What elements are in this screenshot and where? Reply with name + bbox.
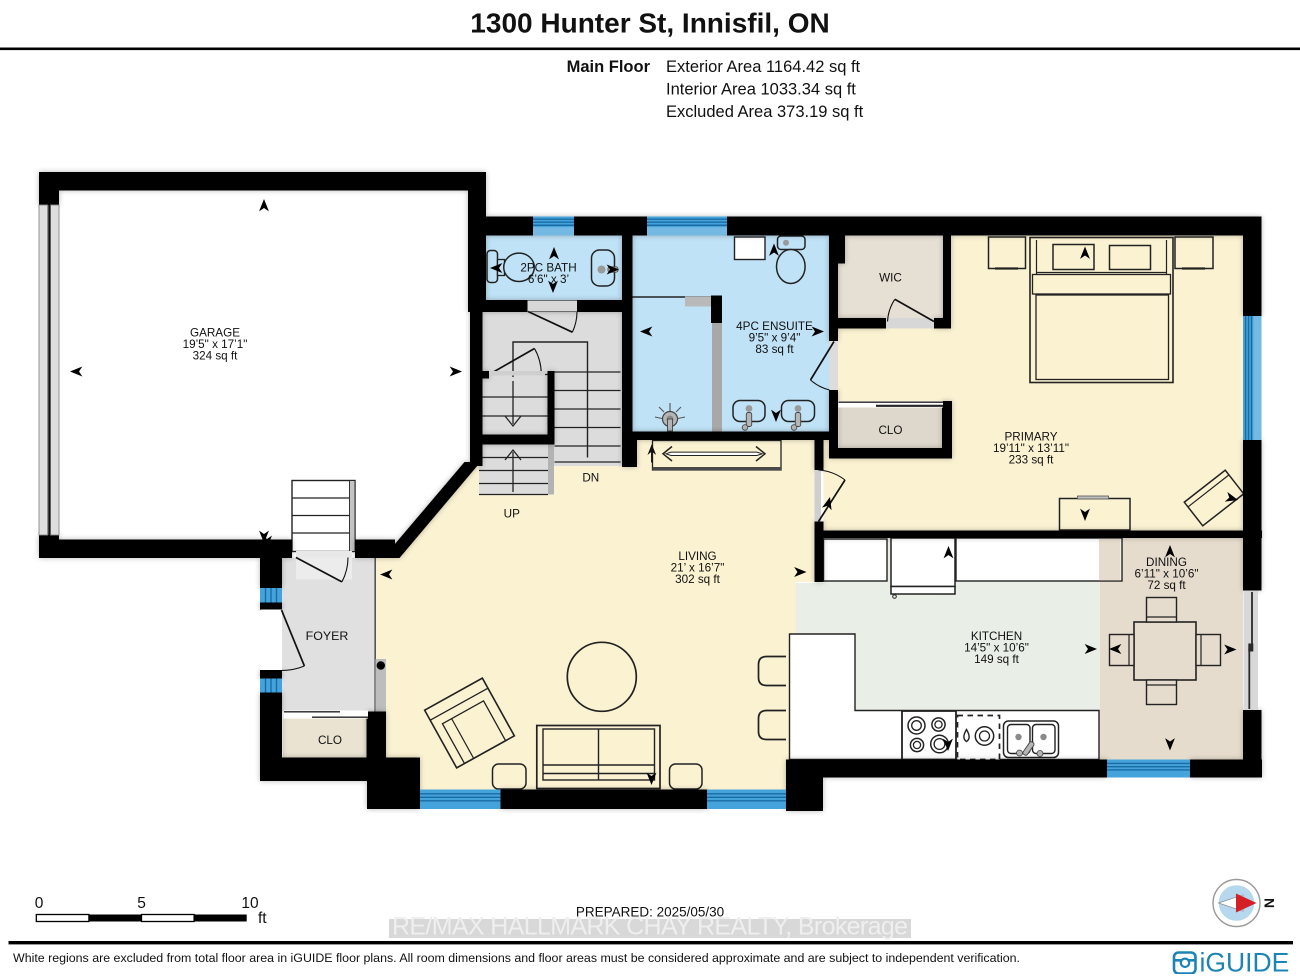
svg-text:UP: UP [504,508,520,521]
svg-text:DN: DN [582,472,599,485]
svg-text:302 sq ft: 302 sq ft [675,573,721,586]
svg-text:10: 10 [241,895,259,912]
svg-text:72 sq ft: 72 sq ft [1147,579,1186,592]
svg-text:Main Floor: Main Floor [567,58,651,76]
svg-text:N: N [1261,898,1277,908]
svg-text:RE/MAX HALLMARK CHAY REALTY, B: RE/MAX HALLMARK CHAY REALTY, Brokerage [392,913,908,941]
svg-text:233 sq ft: 233 sq ft [1009,454,1055,467]
svg-text:324 sq ft: 324 sq ft [193,350,239,363]
svg-text:149 sq ft: 149 sq ft [974,653,1020,666]
svg-text:CLO: CLO [318,734,342,747]
svg-text:CLO: CLO [878,424,902,437]
svg-text:1300 Hunter St, Innisfil, ON: 1300 Hunter St, Innisfil, ON [470,8,829,39]
svg-text:FOYER: FOYER [306,629,349,643]
svg-text:Interior Area 1033.34 sq ft: Interior Area 1033.34 sq ft [666,81,856,99]
svg-text:83 sq ft: 83 sq ft [755,343,794,356]
svg-text:5: 5 [137,895,146,912]
svg-text:Excluded Area 373.19 sq ft: Excluded Area 373.19 sq ft [666,103,864,121]
svg-text:0: 0 [35,895,44,912]
svg-text:Exterior Area 1164.42 sq ft: Exterior Area 1164.42 sq ft [666,58,861,76]
svg-text:6’6" x 3’: 6’6" x 3’ [528,273,569,286]
svg-text:ft: ft [258,910,267,927]
svg-text:iGUIDE: iGUIDE [1200,948,1290,975]
svg-text:White regions are excluded fro: White regions are excluded from total fl… [13,951,1020,965]
svg-text:WIC: WIC [879,272,902,285]
